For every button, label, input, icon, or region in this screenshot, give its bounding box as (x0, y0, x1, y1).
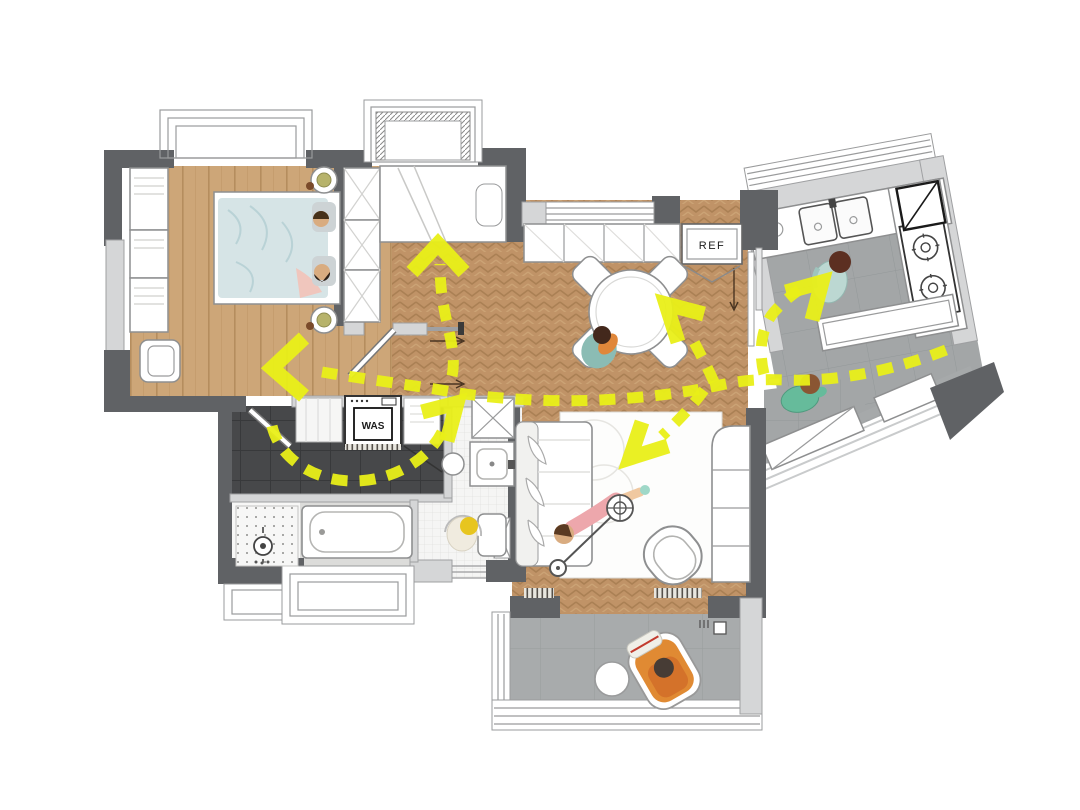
refrigerator-label: REF (699, 240, 726, 252)
washing-machine: WAS (345, 396, 401, 450)
washbasin (470, 442, 515, 486)
dining-kitchen-corner (740, 190, 778, 250)
dressing-table (478, 514, 506, 556)
dining-cabinets (524, 224, 680, 262)
kids-window-top (364, 100, 482, 162)
corner-cabinet (896, 181, 945, 230)
tub-bay-window (282, 566, 414, 624)
stool (442, 453, 464, 475)
threshold-2 (654, 588, 702, 598)
vanity-cabinet (472, 398, 514, 438)
bathroom-top-wall (104, 396, 246, 412)
double-bed (214, 192, 340, 304)
kids-pillow (476, 184, 502, 226)
washer-niche (296, 398, 342, 442)
floor-plan-canvas: REF (0, 0, 1080, 810)
bathtub (302, 506, 412, 558)
kids-wardrobe (344, 168, 380, 322)
single-bed (380, 166, 506, 242)
floor-plan: REF (0, 0, 1080, 810)
master-window-top (160, 110, 312, 158)
left-wall-light (106, 240, 124, 354)
sofa (516, 422, 592, 566)
tall-cabinet (712, 426, 750, 582)
wardrobe (130, 168, 168, 332)
side-table (595, 662, 629, 696)
dining-window-top (546, 202, 654, 226)
washer-label: WAS (362, 421, 385, 432)
threshold-1 (524, 588, 554, 598)
shower (236, 506, 298, 566)
person-vanity-head (460, 517, 478, 535)
